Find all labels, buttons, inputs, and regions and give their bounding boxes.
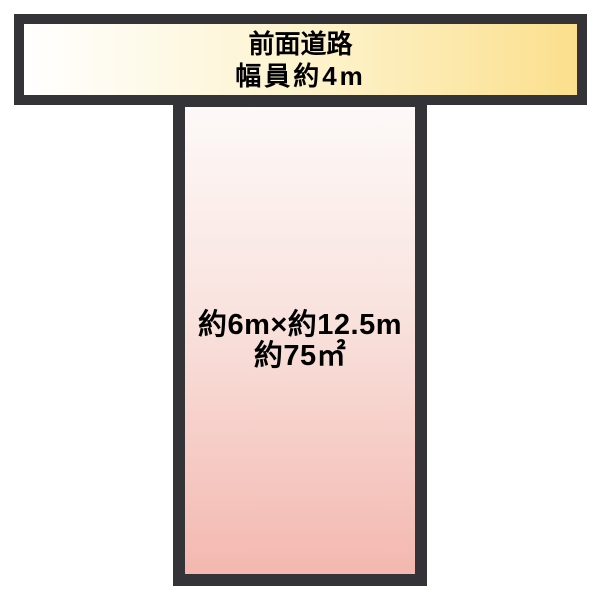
plot-size-label: 約6m×約12.5m	[198, 310, 402, 341]
road-band: 前面道路 幅員約4m	[14, 14, 587, 105]
road-label: 前面道路 幅員約4m	[235, 28, 366, 92]
road-label-line2: 幅員約4m	[235, 60, 366, 92]
plot-area: 約6m×約12.5m 約75㎡	[173, 95, 427, 586]
land-plot-diagram: 約6m×約12.5m 約75㎡ 前面道路 幅員約4m	[0, 0, 600, 600]
plot-area-label: 約75㎡	[198, 341, 402, 372]
plot-label: 約6m×約12.5m 約75㎡	[198, 310, 402, 372]
road-label-line1: 前面道路	[235, 28, 366, 60]
